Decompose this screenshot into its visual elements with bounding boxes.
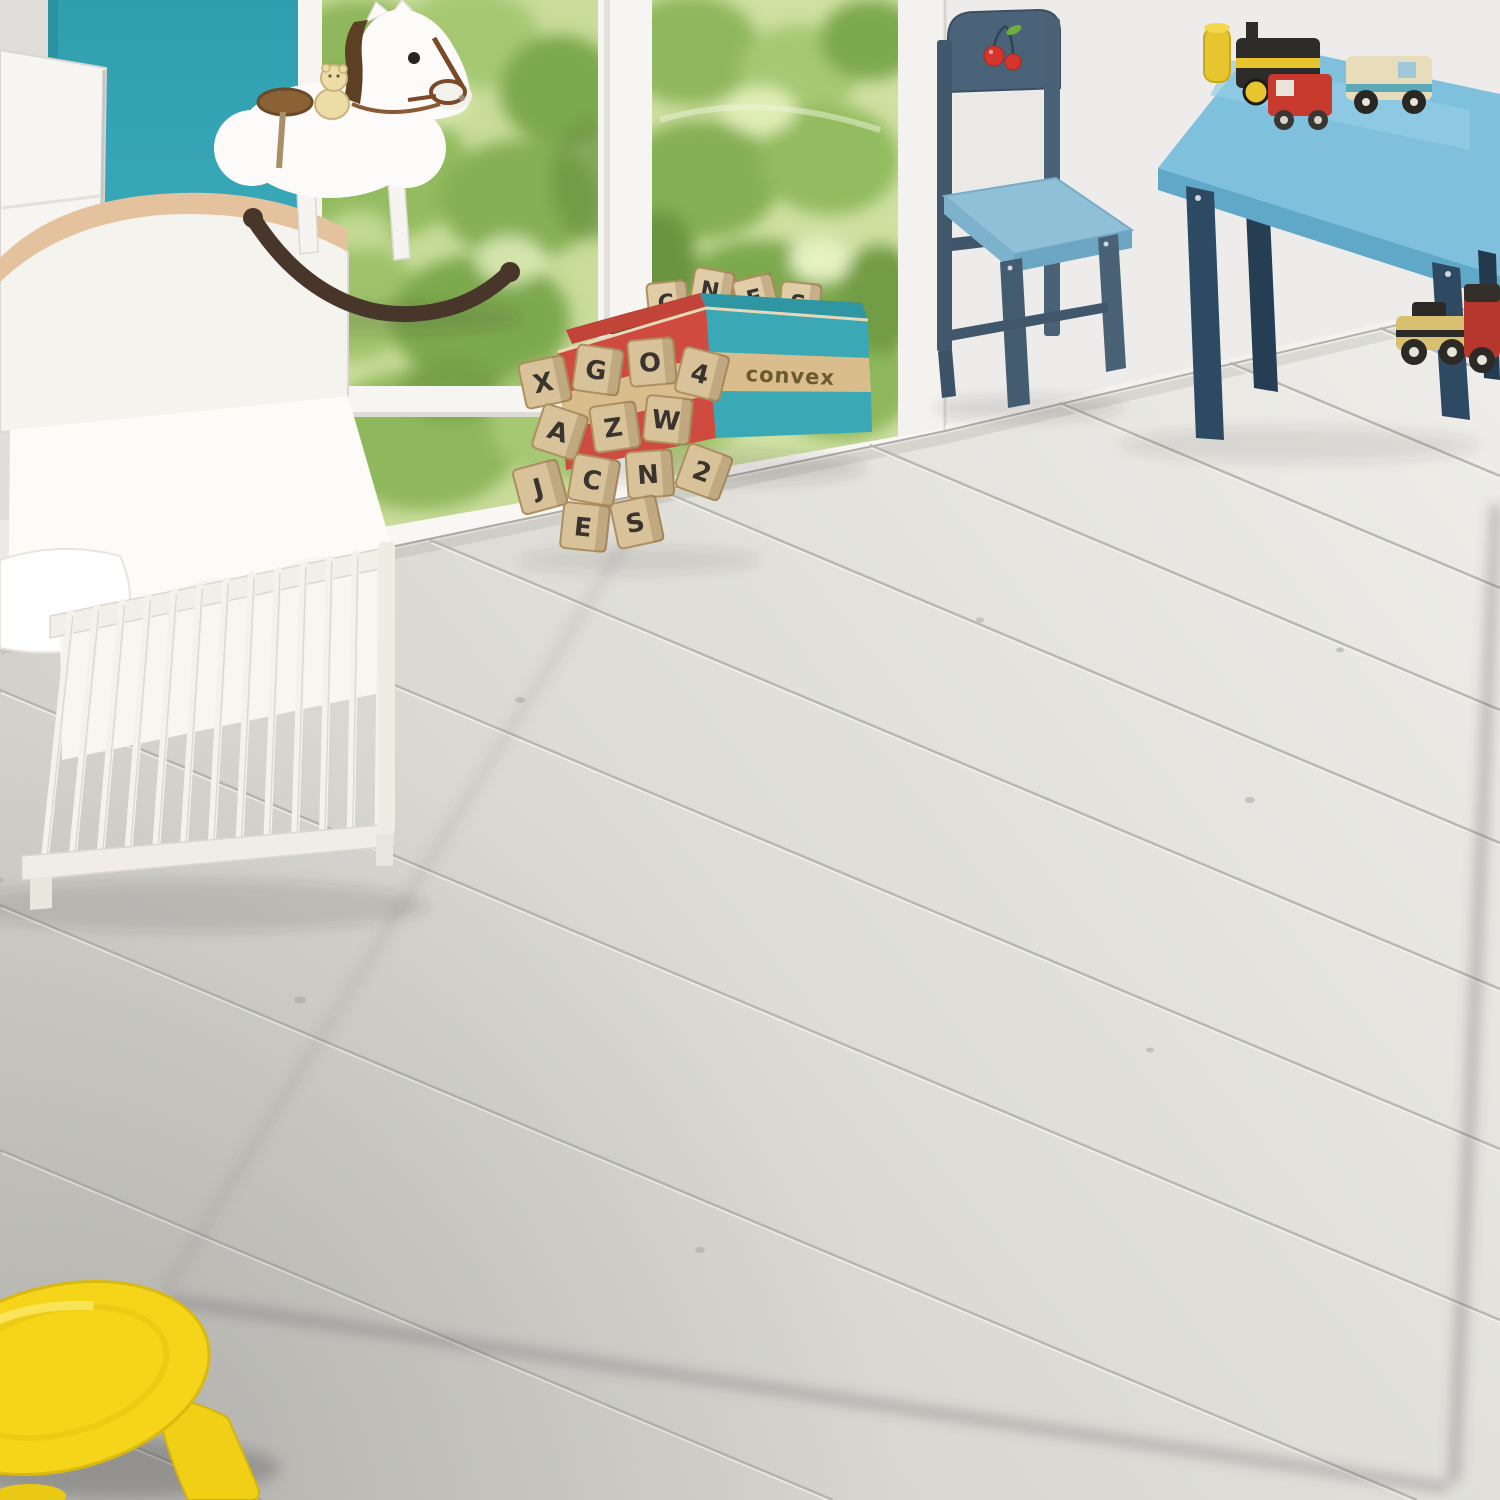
- crib-post: [378, 542, 395, 834]
- toy-block: E: [560, 502, 611, 553]
- room-background: CNES2 convex XGO4AZWJCNES2: [0, 0, 1500, 1500]
- box-label: convex: [745, 362, 835, 390]
- crib-headboard: [0, 212, 348, 432]
- toy-block: N: [625, 449, 674, 498]
- svg-text:W: W: [650, 405, 681, 438]
- horse-eye: [408, 52, 420, 64]
- svg-text:G: G: [583, 355, 608, 388]
- toy-block: 4: [674, 346, 730, 402]
- toy-block: S: [610, 495, 665, 550]
- toy-block: W: [643, 395, 694, 446]
- toy-block: G: [572, 344, 624, 396]
- horse-saddle: [258, 89, 312, 115]
- toy-block: X: [518, 355, 573, 410]
- svg-text:E: E: [573, 512, 594, 544]
- svg-text:O: O: [638, 347, 662, 379]
- toy-block: Z: [589, 401, 641, 453]
- svg-text:N: N: [636, 460, 660, 491]
- playroom-photo: CNES2 convex XGO4AZWJCNES2: [0, 0, 1500, 1500]
- toy-block: O: [627, 337, 677, 387]
- toy-block: C: [567, 453, 620, 506]
